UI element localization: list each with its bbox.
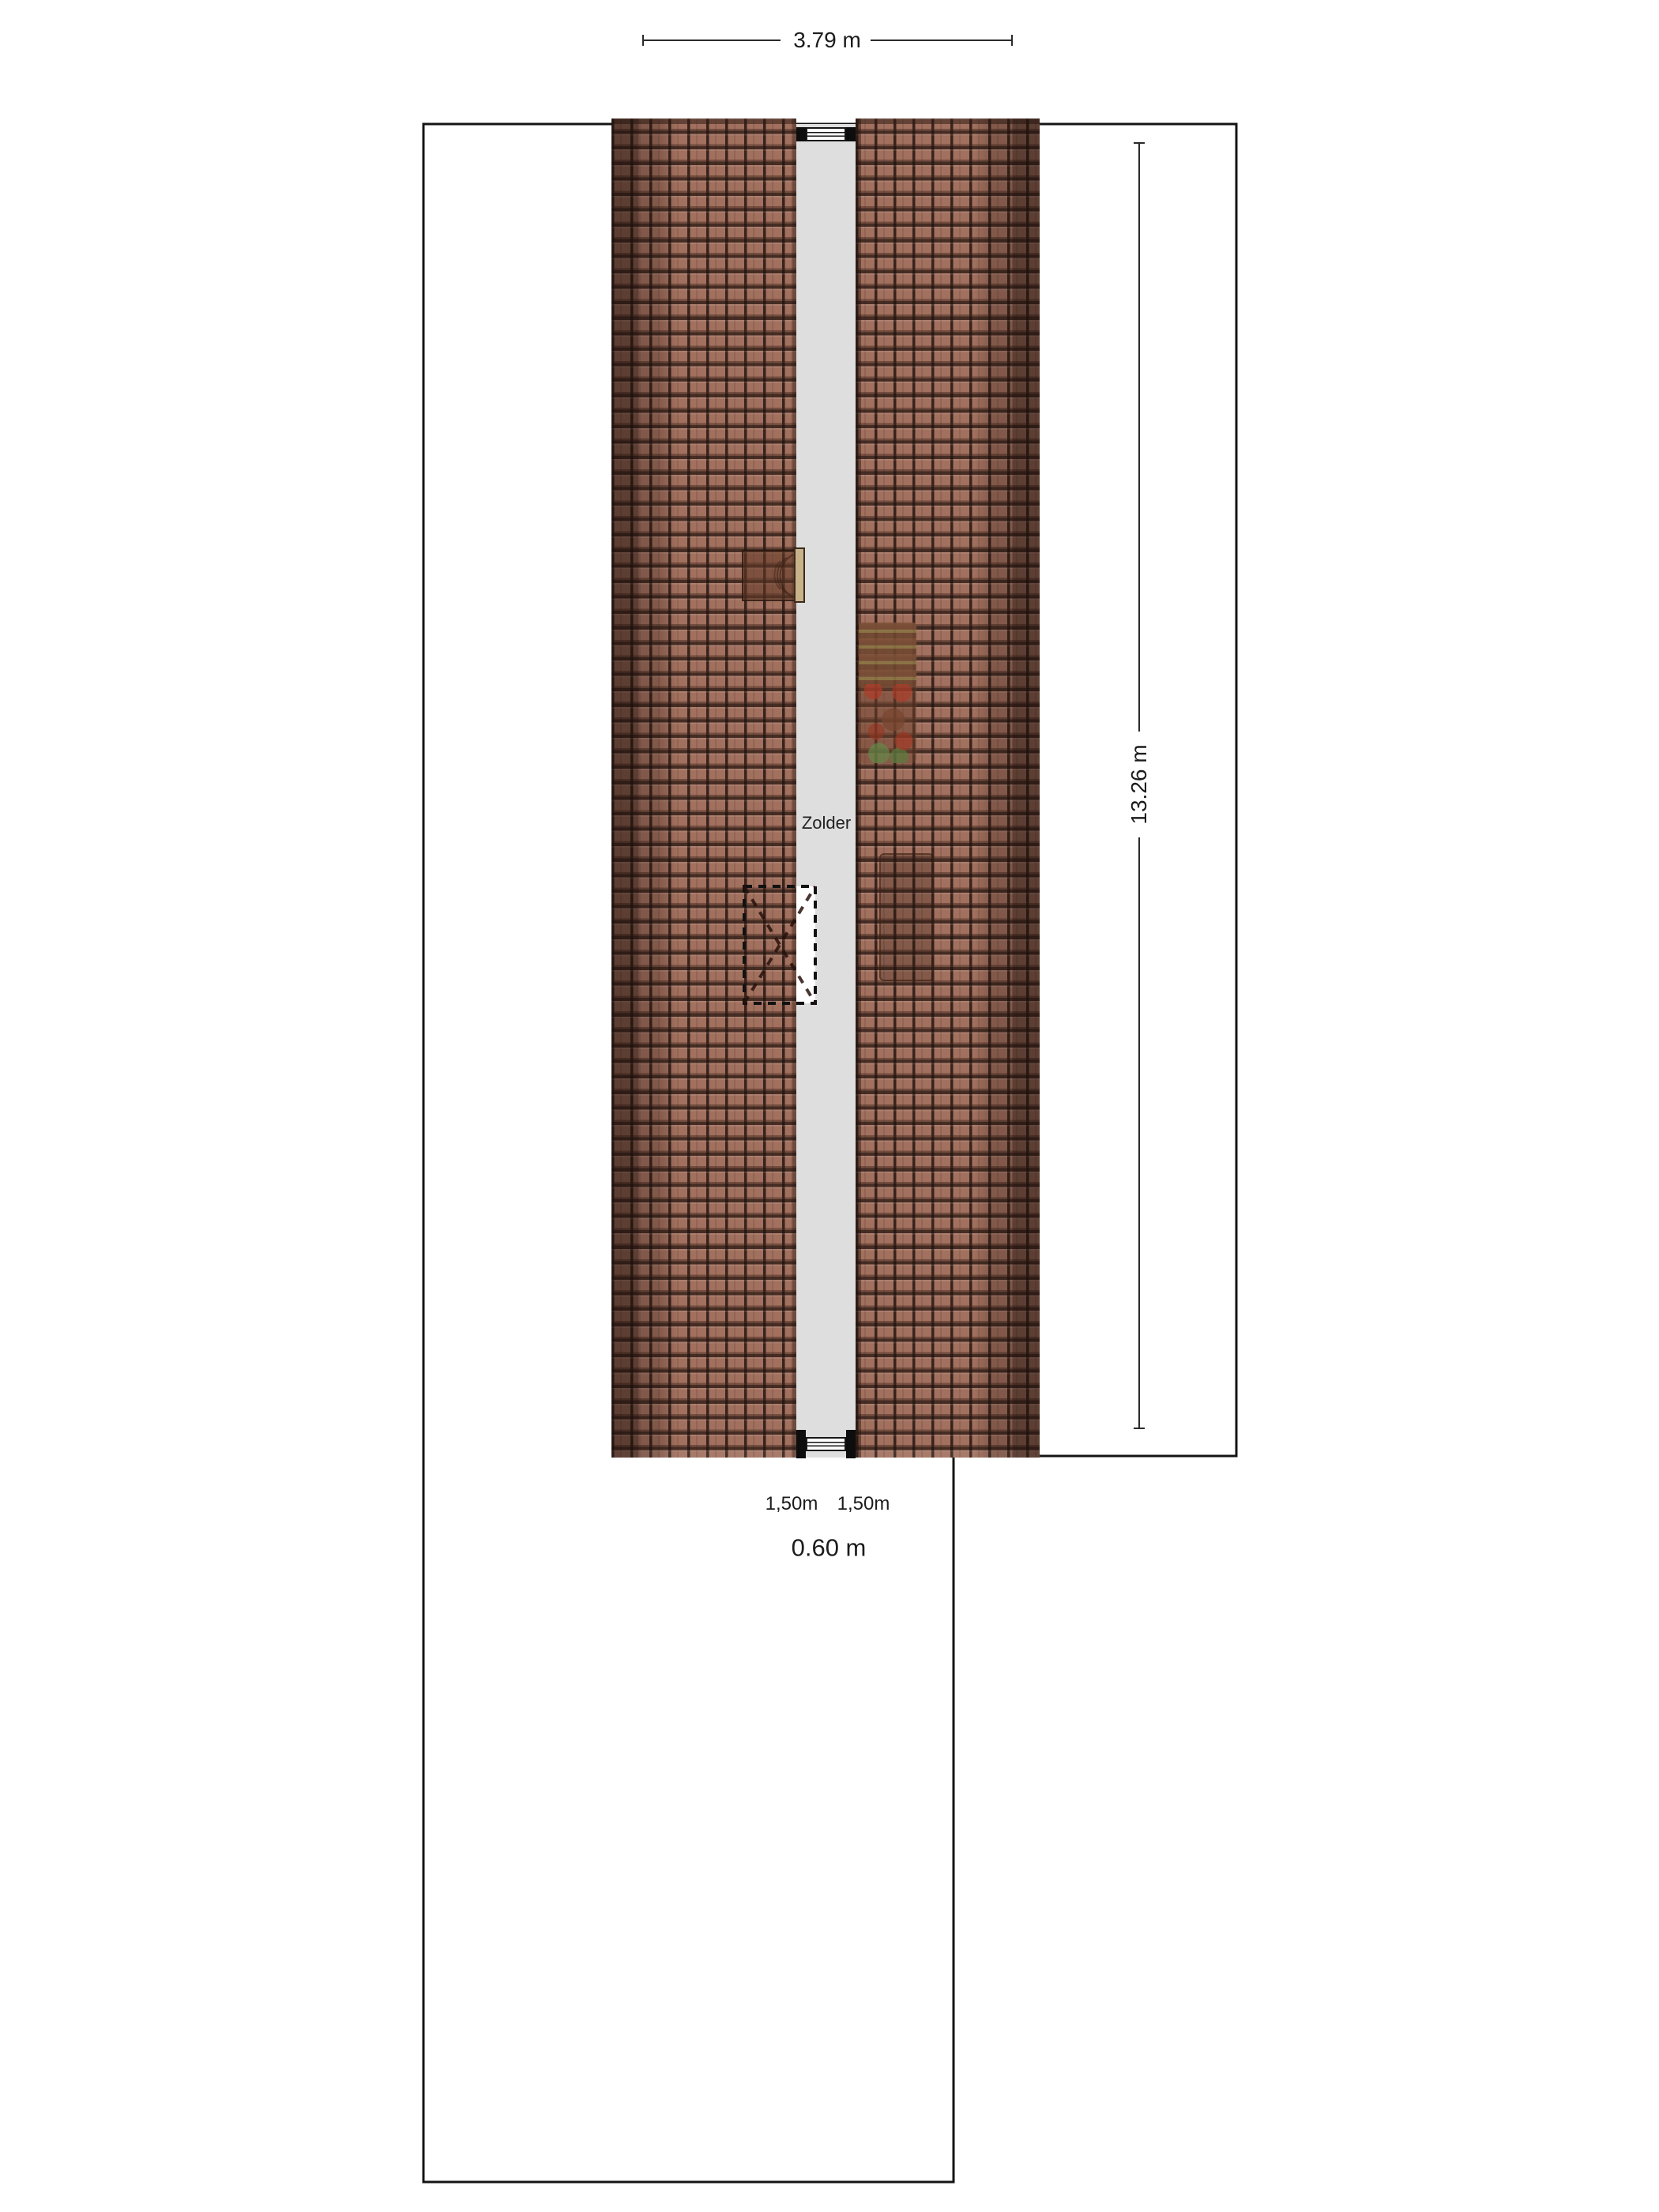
skylight-window xyxy=(743,548,804,602)
dimension-width-label: 3.79 m xyxy=(793,29,861,51)
floorplan-canvas: 3.79 m 13.26 m Zolder 1,50m 1,50m 0.60 m xyxy=(0,0,1659,2212)
room-label: Zolder xyxy=(802,814,851,832)
knee-wall-left-label: 1,50m xyxy=(766,1495,818,1514)
dimension-height-label: 13.26 m xyxy=(1128,744,1150,824)
knee-wall-right-label: 1,50m xyxy=(837,1495,890,1514)
plan-detail-layer xyxy=(0,0,1659,2212)
skylight-frame-bar xyxy=(795,548,804,602)
eave-offset-label: 0.60 m xyxy=(792,1536,867,1560)
stair-opening xyxy=(744,886,815,1003)
